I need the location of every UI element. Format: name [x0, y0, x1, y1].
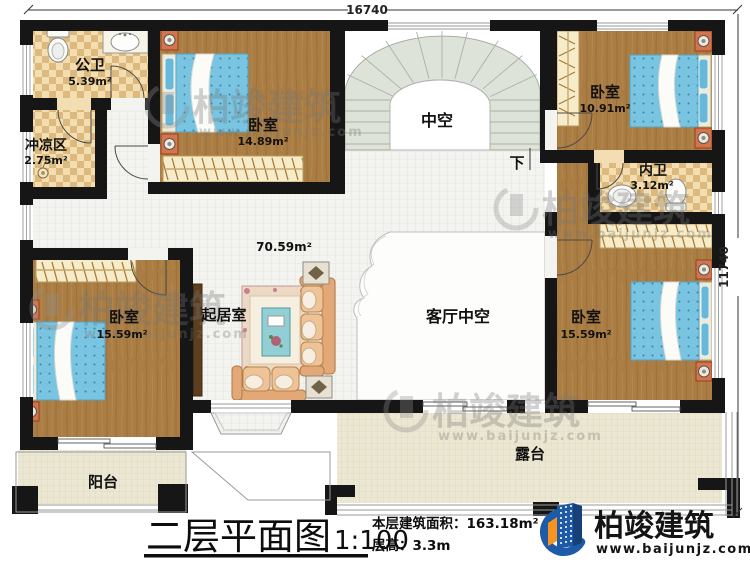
closet-bedroom-top	[163, 156, 303, 182]
label-stair-down: 下	[509, 154, 524, 172]
label-bedroom-right: 卧室	[571, 308, 601, 326]
label-stair-void: 中空	[421, 111, 453, 130]
label-balcony: 阳台	[88, 473, 118, 491]
closet-bedroom-left	[36, 258, 136, 282]
title-underline	[144, 554, 368, 558]
label-living-void: 客厅中空	[426, 307, 490, 326]
floor-plan-drawing: 柏竣建筑 www.baijunjz.com 柏竣建筑 www.baijunjz.…	[0, 0, 750, 567]
label-bedroom-right-area: 15.59m²	[560, 328, 611, 341]
label-public-bath-area: 5.39m²	[68, 75, 112, 88]
coffee-table	[262, 308, 290, 356]
dimension-height: 11740	[717, 246, 731, 288]
label-ensuite-bath: 内卫	[639, 162, 667, 179]
label-ensuite-bath-area: 3.12m²	[630, 179, 674, 192]
label-bedroom-top: 卧室	[248, 116, 278, 134]
label-bedroom-top-right-area: 10.91m²	[579, 102, 630, 115]
label-shower-zone-area: 2.75m²	[24, 154, 68, 167]
label-bedroom-top-area: 14.89m²	[237, 135, 288, 148]
label-sitting-room: 起居室	[200, 306, 246, 324]
sink-icon	[103, 30, 148, 53]
brand-logo: 柏竣建筑 www.baijunjz.com	[544, 503, 750, 557]
closet-bedroom-top-right	[557, 31, 579, 126]
label-bedroom-left-area: 15.59m²	[96, 328, 147, 341]
label-bedroom-left: 卧室	[109, 308, 139, 326]
label-shower-zone: 冲凉区	[25, 137, 67, 154]
watermark-text: 柏竣建筑	[542, 188, 690, 231]
brand-url: www.baijunjz.com	[596, 542, 750, 557]
label-bedroom-top-right: 卧室	[590, 83, 620, 101]
label-hall-area: 70.59m²	[256, 240, 312, 254]
floor-plan-page: 柏竣建筑 www.baijunjz.com 柏竣建筑 www.baijunjz.…	[0, 0, 750, 567]
label-public-bath: 公卫	[75, 56, 105, 74]
floor-area-info: 本层建筑面积：163.18m²	[372, 515, 539, 532]
staircase	[345, 30, 540, 170]
label-terrace: 露台	[515, 445, 545, 463]
watermark-url: www.baijunjz.com	[548, 227, 713, 242]
brand-name: 柏竣建筑	[594, 509, 714, 544]
title-block: 二层平面图 1:100 本层建筑面积：163.18m² 层高：3.3m	[144, 515, 539, 558]
toilet-icon	[47, 30, 69, 62]
dimension-width: 16740	[346, 3, 388, 17]
plan-title: 二层平面图	[146, 515, 331, 558]
watermark-text: 柏竣建筑	[432, 390, 580, 433]
bay-window	[211, 400, 291, 434]
watermark-url: www.baijunjz.com	[438, 429, 603, 444]
floor-height-info: 层高：3.3m	[372, 537, 450, 554]
